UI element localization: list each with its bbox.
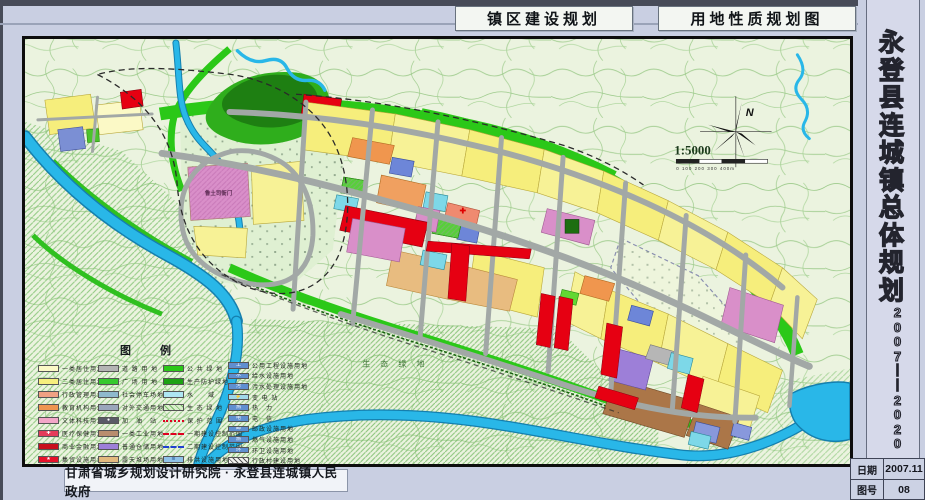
legend-swatch bbox=[163, 391, 184, 398]
info-row: 日期2007.11 bbox=[851, 459, 924, 480]
plan-title-char: 县 bbox=[858, 85, 925, 113]
legend-swatch bbox=[163, 404, 184, 411]
legend-swatch bbox=[163, 417, 184, 424]
legend-swatch bbox=[163, 443, 184, 450]
legend-item: 水给水设施用地 bbox=[228, 371, 308, 382]
plan-year-char: 0 bbox=[864, 321, 925, 336]
plan-title-vertical: 永登县连城镇总体规划 bbox=[858, 30, 925, 305]
legend-item: 广 场 用 地 bbox=[98, 375, 164, 388]
legend-swatch: 工 bbox=[228, 362, 249, 369]
legend-swatch bbox=[98, 443, 119, 450]
eco-green-label: 生 态 绿 地 bbox=[362, 358, 428, 368]
sheet-left-edge bbox=[0, 0, 3, 500]
plan-title-char: 划 bbox=[858, 278, 925, 306]
legend-swatch bbox=[38, 378, 59, 385]
plan-year-char: 2 bbox=[864, 423, 925, 438]
legend-swatch: 邮 bbox=[228, 426, 249, 433]
legend-item: 污污水处理设施用地 bbox=[228, 381, 308, 392]
legend-swatch: ⚡ bbox=[228, 394, 249, 401]
legend-item: 社会停车场地 bbox=[98, 388, 164, 401]
legend-swatch bbox=[38, 443, 59, 450]
plan-title-char: 镇 bbox=[858, 168, 925, 196]
legend-swatch: ✚ bbox=[38, 430, 59, 437]
plan-year-char: 丨 bbox=[864, 379, 925, 394]
legend-swatch bbox=[163, 430, 184, 437]
info-value: 08 bbox=[884, 480, 924, 499]
legend-column-4: 工公用工程设施用地水给水设施用地污污水处理设施用地⚡变 电 站热热 力电电 信邮… bbox=[228, 360, 308, 466]
plan-year-char: 丨 bbox=[864, 364, 925, 379]
plan-year-char: 0 bbox=[864, 437, 925, 452]
legend-swatch bbox=[38, 417, 59, 424]
legend-swatch: 污 bbox=[228, 383, 249, 390]
legend-title: 图 例 bbox=[100, 342, 200, 358]
legend-item-label: 一类工业用地 bbox=[122, 429, 164, 438]
legend-item-label: 邮政设施用地 bbox=[252, 424, 294, 433]
legend-item-label: 保 护 范 围 bbox=[187, 416, 223, 425]
legend-column-1: 一类居住用地二类居住用地行政管理用地教育机构用地文体科技用地✚医疗保健用地商业金… bbox=[38, 362, 104, 466]
legend-swatch: 电 bbox=[228, 415, 249, 422]
legend-swatch bbox=[98, 391, 119, 398]
legend-swatch: 燃 bbox=[228, 436, 249, 443]
legend-item: 燃燃气设施用地 bbox=[228, 434, 308, 445]
legend-item-label: 水 域 bbox=[187, 390, 215, 399]
legend-item-label: 道 路 用 地 bbox=[122, 364, 158, 373]
legend-item-label: 电 信 bbox=[252, 414, 273, 423]
legend-item: 邮邮政设施用地 bbox=[228, 424, 308, 435]
title-box-series: 镇区建设规划 bbox=[455, 6, 633, 31]
legend-item: ⚡变 电 站 bbox=[228, 392, 308, 403]
plan-title-char: 体 bbox=[858, 223, 925, 251]
legend-swatch bbox=[38, 365, 59, 372]
legend-swatch bbox=[163, 378, 184, 385]
legend-swatch bbox=[98, 430, 119, 437]
legend-swatch bbox=[98, 404, 119, 411]
legend-item-label: 热 力 bbox=[252, 403, 273, 412]
plan-title-char: 连 bbox=[858, 113, 925, 141]
scale-ticks: 0 100 200 300 400m bbox=[676, 166, 735, 171]
legend-swatch: 水 bbox=[228, 373, 249, 380]
legend-item: 一类工业用地 bbox=[98, 427, 164, 440]
legend-item-label: 环卫设施用地 bbox=[252, 446, 294, 455]
scale-text: 1:5000 bbox=[674, 143, 711, 157]
plan-year-char: 7 bbox=[864, 350, 925, 365]
plan-title-char: 城 bbox=[858, 140, 925, 168]
legend-swatch: ● bbox=[98, 417, 119, 424]
legend-swatch: ★ bbox=[38, 456, 59, 463]
legend-item: 文体科技用地 bbox=[38, 414, 104, 427]
legend-item-label: 污水处理设施用地 bbox=[252, 382, 308, 391]
legend-item: 教育机构用地 bbox=[38, 401, 104, 414]
legend-item: ✚医疗保健用地 bbox=[38, 427, 104, 440]
legend-item-label: 普通仓储用地 bbox=[122, 442, 164, 451]
plan-year-char: 0 bbox=[864, 408, 925, 423]
legend-item-label: 广 场 用 地 bbox=[122, 377, 158, 386]
legend-item: 道 路 用 地 bbox=[98, 362, 164, 375]
series-title: 镇区建设规划 bbox=[487, 8, 601, 29]
legend-item-label: 生 态 绿 地 bbox=[187, 403, 223, 412]
title-box-sheet: 用地性质规划图 bbox=[658, 6, 856, 31]
scale-bar bbox=[676, 159, 767, 163]
legend: 图 例 一类居住用地二类居住用地行政管理用地教育机构用地文体科技用地✚医疗保健用… bbox=[30, 341, 322, 468]
legend-item: 对外交通用地 bbox=[98, 401, 164, 414]
credit-text: 甘肃省城乡规划设计研究院 · 永登县连城镇人民政府 bbox=[65, 462, 347, 500]
sheet-title: 用地性质规划图 bbox=[690, 8, 823, 29]
planning-sheet: 镇区建设规划 用地性质规划图 bbox=[0, 0, 925, 500]
legend-swatch bbox=[38, 404, 59, 411]
legend-swatch bbox=[98, 378, 119, 385]
legend-item: 一类居住用地 bbox=[38, 362, 104, 375]
legend-swatch bbox=[98, 365, 119, 372]
plan-year-char: 0 bbox=[864, 335, 925, 350]
legend-item: 商业金融用地 bbox=[38, 440, 104, 453]
legend-item: 二类居住用地 bbox=[38, 375, 104, 388]
drawing-info-table: 日期2007.11图号08 bbox=[850, 458, 925, 500]
legend-item-label: 公用工程设施用地 bbox=[252, 361, 308, 370]
legend-item-label: 公 共 绿 地 bbox=[187, 364, 223, 373]
legend-item: 电电 信 bbox=[228, 413, 308, 424]
legend-swatch bbox=[38, 391, 59, 398]
legend-item-label: 对外交通用地 bbox=[122, 403, 164, 412]
legend-item: ●加 油 站 bbox=[98, 414, 164, 427]
plan-title-char: 永 bbox=[858, 30, 925, 58]
plan-title-char: 总 bbox=[858, 195, 925, 223]
legend-item-label: 加 油 站 bbox=[122, 416, 157, 425]
legend-item-label: 给水设施用地 bbox=[252, 371, 294, 380]
legend-item-label: 生产防护绿地 bbox=[187, 377, 229, 386]
legend-item: 环环卫设施用地 bbox=[228, 445, 308, 456]
plan-title-char: 登 bbox=[858, 58, 925, 86]
legend-item: 行政管理用地 bbox=[38, 388, 104, 401]
plan-years-vertical: 2007丨丨2020 bbox=[864, 306, 925, 452]
legend-item-label: 变 电 站 bbox=[252, 393, 278, 402]
lutusi-label: 鲁土司衙门 bbox=[204, 189, 233, 197]
plan-year-char: 2 bbox=[864, 394, 925, 409]
legend-item: 普通仓储用地 bbox=[98, 440, 164, 453]
legend-column-2: 道 路 用 地广 场 用 地社会停车场地对外交通用地●加 油 站一类工业用地普通… bbox=[98, 362, 164, 466]
info-label: 日期 bbox=[851, 459, 884, 479]
info-row: 图号08 bbox=[851, 480, 924, 499]
title-block-sidebar: 永登县连城镇总体规划 2007丨丨2020 bbox=[858, 0, 925, 500]
credit-bar: 甘肃省城乡规划设计研究院 · 永登县连城镇人民政府 bbox=[64, 469, 348, 492]
plan-year-char: 2 bbox=[864, 306, 925, 321]
plan-title-char: 规 bbox=[858, 250, 925, 278]
legend-item: 热热 力 bbox=[228, 402, 308, 413]
legend-swatch bbox=[163, 365, 184, 372]
legend-swatch: 热 bbox=[228, 404, 249, 411]
north-label: N bbox=[746, 107, 755, 119]
legend-swatch: 环 bbox=[228, 447, 249, 454]
legend-item-label: 社会停车场地 bbox=[122, 390, 164, 399]
legend-item: 工公用工程设施用地 bbox=[228, 360, 308, 371]
legend-item-label: 燃气设施用地 bbox=[252, 435, 294, 444]
info-label: 图号 bbox=[851, 480, 884, 499]
info-value: 2007.11 bbox=[884, 459, 924, 479]
